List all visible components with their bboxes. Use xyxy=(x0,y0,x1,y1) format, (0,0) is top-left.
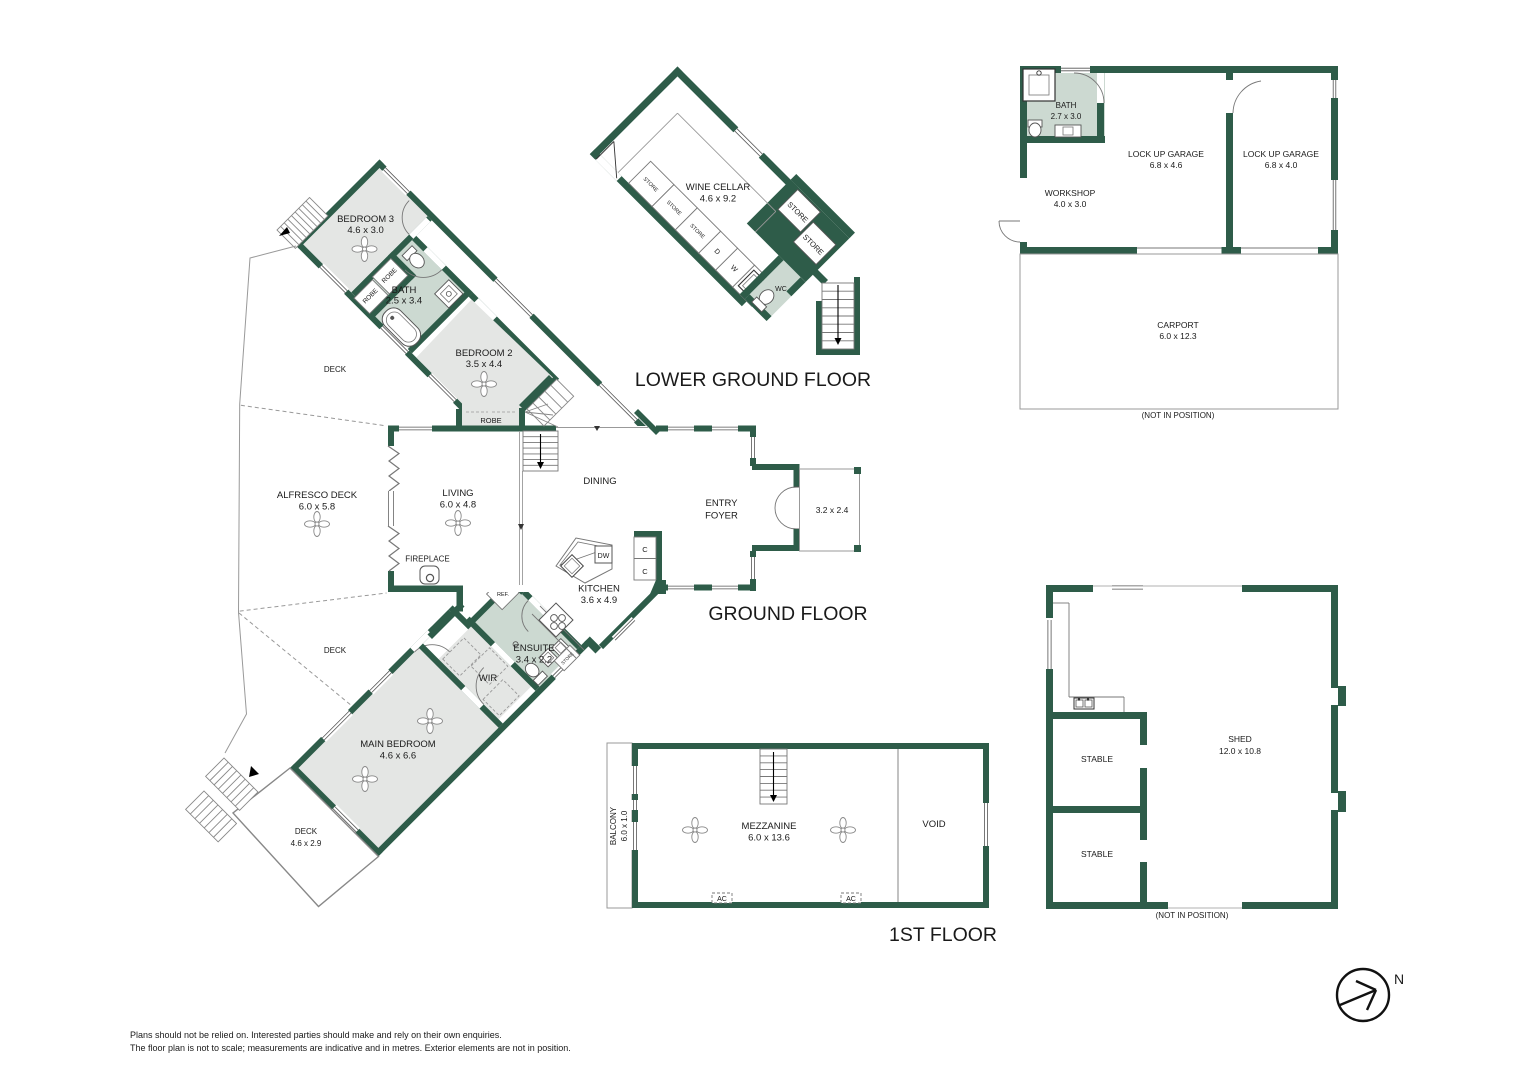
svg-text:2.7 x 3.0: 2.7 x 3.0 xyxy=(1051,112,1082,121)
svg-text:6.0 x 12.3: 6.0 x 12.3 xyxy=(1159,331,1197,341)
svg-text:C: C xyxy=(642,545,648,554)
svg-text:WINE CELLAR: WINE CELLAR xyxy=(686,182,751,193)
svg-text:MEZZANINE: MEZZANINE xyxy=(742,821,797,832)
svg-text:SHED: SHED xyxy=(1228,734,1252,744)
svg-text:(NOT IN POSITION): (NOT IN POSITION) xyxy=(1142,411,1215,420)
svg-text:4.6 x 6.6: 4.6 x 6.6 xyxy=(380,751,416,762)
svg-text:WORKSHOP: WORKSHOP xyxy=(1045,188,1096,198)
svg-text:DINING: DINING xyxy=(583,476,616,487)
svg-text:1ST FLOOR: 1ST FLOOR xyxy=(889,924,997,946)
svg-text:AC: AC xyxy=(846,896,856,903)
svg-text:DW: DW xyxy=(598,553,610,560)
svg-text:BEDROOM 3: BEDROOM 3 xyxy=(337,214,394,225)
svg-text:CARPORT: CARPORT xyxy=(1157,320,1198,330)
svg-text:6.0 x 13.6: 6.0 x 13.6 xyxy=(748,833,790,844)
svg-text:AC: AC xyxy=(717,896,727,903)
svg-text:4.6 x 3.0: 4.6 x 3.0 xyxy=(347,225,383,236)
svg-text:6.0 x 1.0: 6.0 x 1.0 xyxy=(620,810,629,841)
svg-text:ROBE: ROBE xyxy=(480,416,501,425)
svg-text:6.0 x 4.8: 6.0 x 4.8 xyxy=(440,500,476,511)
svg-text:KITCHEN: KITCHEN xyxy=(578,584,620,595)
svg-text:N: N xyxy=(1394,971,1404,987)
svg-text:4.6 x 9.2: 4.6 x 9.2 xyxy=(700,194,736,205)
svg-text:DECK: DECK xyxy=(324,646,347,655)
svg-text:GROUND FLOOR: GROUND FLOOR xyxy=(708,603,867,625)
svg-text:C: C xyxy=(642,567,648,576)
svg-text:STABLE: STABLE xyxy=(1081,754,1113,764)
svg-text:LIVING: LIVING xyxy=(442,488,473,499)
svg-text:WIR: WIR xyxy=(479,673,498,684)
svg-text:Plans should not be relied on.: Plans should not be relied on. Intereste… xyxy=(130,1030,502,1040)
svg-text:FOYER: FOYER xyxy=(705,511,738,522)
svg-text:3.6 x 4.9: 3.6 x 4.9 xyxy=(581,595,617,606)
svg-text:WC: WC xyxy=(775,286,787,293)
svg-text:BEDROOM 2: BEDROOM 2 xyxy=(455,348,512,359)
svg-text:6.8 x 4.0: 6.8 x 4.0 xyxy=(1265,160,1298,170)
svg-text:2.5 x 3.4: 2.5 x 3.4 xyxy=(386,296,422,307)
svg-text:BATH: BATH xyxy=(1056,101,1077,110)
svg-text:MAIN BEDROOM: MAIN BEDROOM xyxy=(360,739,436,750)
svg-text:BALCONY: BALCONY xyxy=(609,806,618,845)
svg-text:REF.: REF. xyxy=(497,592,509,598)
svg-text:3.5 x 4.4: 3.5 x 4.4 xyxy=(466,359,502,370)
svg-text:4.6 x 2.9: 4.6 x 2.9 xyxy=(291,839,322,848)
svg-text:6.8 x 4.6: 6.8 x 4.6 xyxy=(1150,160,1183,170)
svg-text:LOWER GROUND FLOOR: LOWER GROUND FLOOR xyxy=(635,369,871,391)
svg-text:4.0 x 3.0: 4.0 x 3.0 xyxy=(1054,199,1087,209)
svg-text:LOCK UP GARAGE: LOCK UP GARAGE xyxy=(1128,149,1204,159)
svg-text:FIREPLACE: FIREPLACE xyxy=(405,555,449,564)
svg-text:3.4 x 2.2: 3.4 x 2.2 xyxy=(516,655,552,666)
svg-text:ENSUITE: ENSUITE xyxy=(513,643,554,654)
svg-text:ALFRESCO DECK: ALFRESCO DECK xyxy=(277,490,358,501)
svg-text:The floor plan is not to scale: The floor plan is not to scale; measurem… xyxy=(130,1043,571,1053)
svg-text:DECK: DECK xyxy=(324,365,347,374)
svg-text:(NOT IN POSITION): (NOT IN POSITION) xyxy=(1156,911,1229,920)
svg-text:STABLE: STABLE xyxy=(1081,849,1113,859)
svg-text:3.2 x 2.4: 3.2 x 2.4 xyxy=(816,505,849,515)
svg-text:6.0 x 5.8: 6.0 x 5.8 xyxy=(299,502,335,513)
svg-text:ENTRY: ENTRY xyxy=(705,498,738,509)
svg-text:DECK: DECK xyxy=(295,827,318,836)
svg-text:BATH: BATH xyxy=(392,285,417,296)
svg-text:LOCK UP GARAGE: LOCK UP GARAGE xyxy=(1243,149,1319,159)
svg-text:12.0 x 10.8: 12.0 x 10.8 xyxy=(1219,746,1261,756)
svg-text:VOID: VOID xyxy=(922,819,945,830)
